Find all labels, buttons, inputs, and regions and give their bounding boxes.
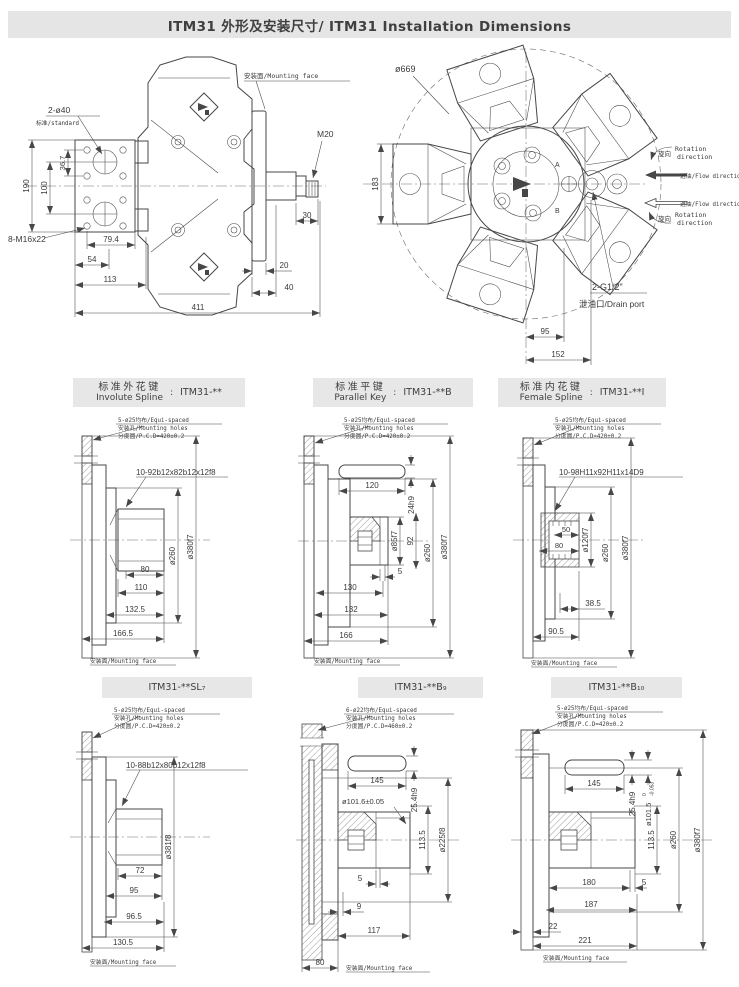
dim-92: 92 <box>406 536 415 545</box>
shaft-thread-callout: M20 <box>317 129 334 139</box>
dim-25-4h9: 25.4h9 <box>410 787 419 812</box>
mounting-face-label: 安装面/Mounting face <box>244 71 318 80</box>
note-1: 5-ø25均布/Equi-spaced <box>118 416 189 424</box>
note-3: 分度圆/P.C.D=420±0.2 <box>557 720 623 728</box>
dim-80: 80 <box>555 541 563 550</box>
header-code: ITM31-**SL₇ <box>149 682 206 693</box>
dim-22: 22 <box>549 922 558 931</box>
note-1: 5-ø25均布/Equi-spaced <box>557 704 628 712</box>
catalog-page: ITM31 外形及安装尺寸/ ITM31 Installation Dimens… <box>0 0 739 987</box>
outer-dia-callout: ø669 <box>395 64 416 74</box>
center-arrow-icon <box>513 177 531 191</box>
note-1: 5-ø25均布/Equi-spaced <box>114 706 185 714</box>
dim-145: 145 <box>370 776 384 785</box>
dim-152: 152 <box>551 350 565 359</box>
dim-113: 113 <box>104 275 117 284</box>
involute-spline-drawing: 5-ø25均布/Equi-spaced 安装孔/Mounting holes 分… <box>60 413 290 677</box>
dim-36-7: 36.7 <box>58 156 67 171</box>
header-sl7: ITM31-**SL₇ <box>102 677 252 698</box>
dim-54: 54 <box>88 255 97 264</box>
note-2: 安装孔/Mounting holes <box>555 424 625 432</box>
dim-187: 187 <box>584 900 598 909</box>
spline-callout: 10-98H11x92H11x14D9 <box>559 468 644 477</box>
dim-113-5: 113.5 <box>418 830 427 850</box>
header-code: ITM31-**B₉ <box>394 682 446 693</box>
dim-411: 411 <box>192 303 205 312</box>
bolt-callout: 8-M16x22 <box>8 234 46 244</box>
note-3: 分度圆/P.C.D=460±0.2 <box>346 722 412 730</box>
dim-120: 120 <box>365 481 379 490</box>
dim-30: 30 <box>303 211 312 220</box>
note-3: 分度圆/P.C.D=420±0.2 <box>555 432 621 440</box>
dim-120f7: ø120f7 <box>581 527 590 552</box>
dim-380: ø380f7 <box>693 827 702 852</box>
front-view-drawing: A B ø669 183 95 152 2-G1/2" 泄油口/Drain po… <box>355 40 739 372</box>
dim-96-5: 96.5 <box>126 912 142 921</box>
dim-260: ø260 <box>669 830 678 849</box>
dim-225f8: ø225f8 <box>438 827 447 852</box>
header-involute-spline: 标准外花键 Involute Spline : ITM31-** <box>73 378 245 407</box>
header-sep: : <box>170 388 173 398</box>
header-sep: : <box>393 388 396 398</box>
dim-132: 132 <box>344 605 358 614</box>
dim-145: 145 <box>587 779 601 788</box>
port-callout: 2-ø40 <box>48 105 70 115</box>
note-2: 安装孔/Mounting holes <box>346 714 416 722</box>
dim-381f8: ø381f8 <box>164 834 173 859</box>
mounting-face-label: 安装面/Mounting face <box>90 657 157 665</box>
b10-drawing: 5-ø25均布/Equi-spaced 安装孔/Mounting holes 分… <box>505 702 739 985</box>
header-b10: ITM31-**B₁₀ <box>551 677 682 698</box>
dim-183: 183 <box>371 177 380 191</box>
note-2: 安装孔/Mounting holes <box>557 712 627 720</box>
rotation-zh: 旋向 <box>658 149 671 158</box>
page-title: ITM31 外形及安装尺寸/ ITM31 Installation Dimens… <box>8 11 731 38</box>
header-code: ITM31-**I <box>600 387 645 398</box>
rotation-en2: direction <box>677 153 712 161</box>
dim-132-5: 132.5 <box>125 605 146 614</box>
header-zh: 标准内花键 <box>520 382 583 394</box>
dim-25-4h9: 25.4h9 <box>628 791 637 816</box>
dim-95: 95 <box>541 327 550 336</box>
flow-label: 进油/Flow direction <box>680 172 739 180</box>
brand-diamond-icon <box>190 93 218 121</box>
rotation-en2: direction <box>677 219 712 227</box>
mounting-face-label: 安装面/Mounting face <box>314 657 381 665</box>
header-en: Parallel Key <box>334 393 386 403</box>
dim-20: 20 <box>280 261 289 270</box>
mounting-face-label: 安装面/Mounting face <box>346 964 413 972</box>
dim-5: 5 <box>642 878 647 887</box>
dim-100: 100 <box>40 181 49 195</box>
dim-130-5: 130.5 <box>113 938 134 947</box>
header-parallel-key: 标准平键 Parallel Key : ITM31-**B <box>313 378 473 407</box>
rotation-en1: Rotation <box>675 211 706 219</box>
header-en: Involute Spline <box>96 393 163 403</box>
header-code: ITM31-** <box>180 387 222 398</box>
header-female-spline: 标准内花键 Female Spline : ITM31-**I <box>498 378 666 407</box>
female-spline-drawing: 5-ø25均布/Equi-spaced 安装孔/Mounting holes 分… <box>505 413 739 677</box>
b9-drawing: 6-ø22均布/Equi-spaced 安装孔/Mounting holes 分… <box>290 702 510 985</box>
tol-upper: 0 <box>642 793 648 796</box>
note-1: 5-ø25均布/Equi-spaced <box>555 416 626 424</box>
dim-221: 221 <box>578 936 592 945</box>
dim-80: 80 <box>141 565 150 574</box>
dim-260: ø260 <box>168 546 177 565</box>
port-b-label: B <box>555 208 560 215</box>
dim-260: ø260 <box>423 543 432 562</box>
dim-166-5: 166.5 <box>113 629 134 638</box>
header-code: ITM31-**B <box>403 387 451 398</box>
header-zh: 标准平键 <box>335 382 385 394</box>
dim-101-6: ø101.6±0.05 <box>342 797 384 806</box>
header-b9: ITM31-**B₉ <box>358 677 483 698</box>
note-2: 安装孔/Mounting holes <box>114 714 184 722</box>
parallel-key-drawing: 5-ø25均布/Equi-spaced 安装孔/Mounting holes 分… <box>290 413 510 677</box>
dim-130: 130 <box>343 583 357 592</box>
flow-label: 进油/Flow direction <box>680 200 739 208</box>
dim-190: 190 <box>22 179 31 193</box>
note-2: 安装孔/Mounting holes <box>118 424 188 432</box>
page-title-text: ITM31 外形及安装尺寸/ ITM31 Installation Dimens… <box>168 15 572 35</box>
rotation-en1: Rotation <box>675 145 706 153</box>
side-view-drawing: 190 100 36.7 79.4 54 113 411 30 20 40 2-… <box>8 45 353 380</box>
dim-79-4: 79.4 <box>103 235 119 244</box>
dim-113-5: 113.5 <box>647 830 656 850</box>
dim-380: ø380f7 <box>621 535 630 560</box>
dim-95: 95 <box>130 886 139 895</box>
dim-380: ø380f7 <box>186 534 195 559</box>
header-code: ITM31-**B₁₀ <box>589 682 645 693</box>
dim-40: 40 <box>285 283 294 292</box>
dim-260: ø260 <box>601 543 610 562</box>
dim-380: ø380f7 <box>440 534 449 559</box>
dim-117: 117 <box>368 926 381 935</box>
drain-label: 泄油口/Drain port <box>579 299 645 309</box>
rotation-zh: 旋向 <box>658 214 671 223</box>
standard-note: 标准/standard <box>36 119 79 127</box>
brand-diamond-icon <box>190 253 218 281</box>
header-sep: : <box>590 388 593 398</box>
dim-9: 9 <box>357 902 362 911</box>
drain-callout: 2-G1/2" <box>592 282 623 292</box>
spline-callout: 10-88b12x80b12x12f8 <box>126 761 206 770</box>
dim-110: 110 <box>135 583 148 592</box>
dim-80: 80 <box>316 958 325 967</box>
dim-101-5-group: ø101.5 0 -0.053 <box>642 782 656 826</box>
dim-38-5: 38.5 <box>585 599 601 608</box>
female-spline-sleeve <box>541 513 579 567</box>
port-a-label: A <box>555 162 560 169</box>
tol-lower: -0.053 <box>650 782 656 796</box>
mounting-face-label: 安装面/Mounting face <box>531 659 598 667</box>
rotation-flow-annotations: 旋向 Rotation direction 进油/Flow direction … <box>645 145 739 227</box>
note-1: 6-ø22均布/Equi-spaced <box>346 706 417 714</box>
sl7-drawing: 5-ø25均布/Equi-spaced 安装孔/Mounting holes 分… <box>60 702 290 985</box>
dim-180: 180 <box>582 878 596 887</box>
note-3: 分度圆/P.C.D=420±0.2 <box>114 722 180 730</box>
dim-72: 72 <box>136 866 145 875</box>
key-plan <box>339 465 405 478</box>
key-plan <box>348 756 406 771</box>
dim-166: 166 <box>339 631 353 640</box>
key-plan <box>565 760 624 775</box>
note-1: 5-ø25均布/Equi-spaced <box>344 416 415 424</box>
header-zh: 标准外花键 <box>98 382 161 394</box>
dim-85f7: ø85f7 <box>390 530 399 551</box>
mounting-face-label: 安装面/Mounting face <box>543 954 610 962</box>
dim-50: 50 <box>562 525 570 534</box>
mounting-face-label: 安装面/Mounting face <box>90 958 157 966</box>
dim-24h9: 24h9 <box>407 496 416 514</box>
dim-90-5: 90.5 <box>548 627 564 636</box>
spline-callout: 10-92b12x82b12x12f8 <box>136 468 216 477</box>
dim-5: 5 <box>398 567 403 576</box>
dim-5: 5 <box>358 874 363 883</box>
header-en: Female Spline <box>520 393 583 403</box>
